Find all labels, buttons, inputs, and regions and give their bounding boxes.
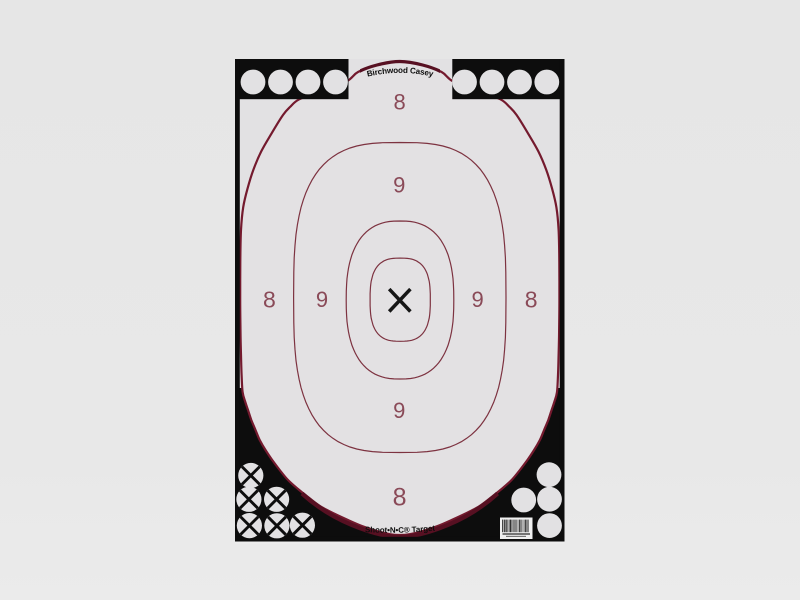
- svg-text:8: 8: [393, 90, 405, 115]
- svg-text:9: 9: [471, 287, 483, 312]
- svg-text:8: 8: [263, 286, 276, 312]
- svg-text:9: 9: [393, 172, 405, 197]
- svg-text:8: 8: [525, 286, 538, 312]
- svg-text:9: 9: [393, 398, 405, 423]
- svg-text:8: 8: [393, 484, 407, 512]
- svg-text:9: 9: [316, 287, 328, 312]
